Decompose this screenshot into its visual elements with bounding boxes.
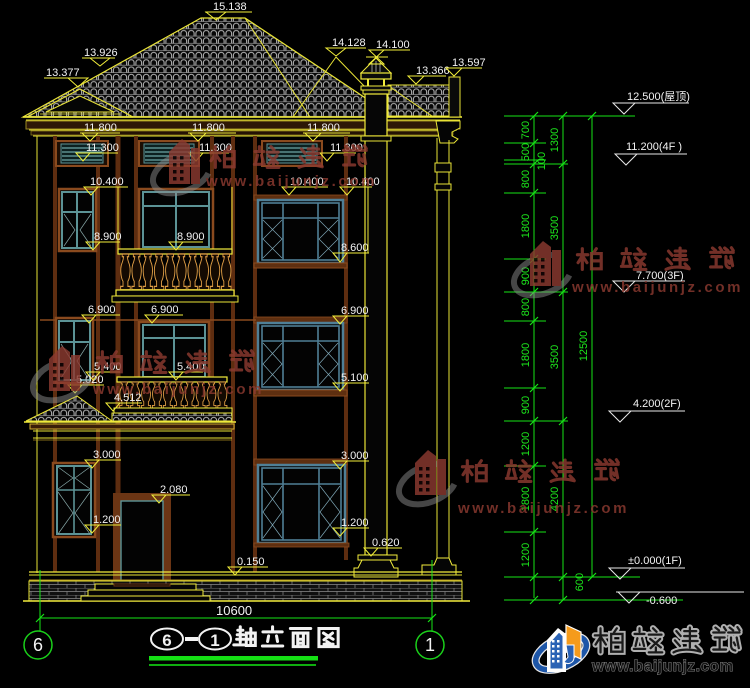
svg-text:10600: 10600 [216, 603, 252, 618]
svg-text:www.baijunjz.com: www.baijunjz.com [591, 658, 734, 675]
svg-text:1800: 1800 [520, 214, 532, 238]
svg-text:1800: 1800 [520, 343, 532, 367]
svg-text:1300: 1300 [549, 128, 561, 152]
svg-text:15.138: 15.138 [213, 1, 247, 13]
svg-text:11.800: 11.800 [84, 122, 117, 134]
svg-text:12.500(屋顶): 12.500(屋顶) [627, 90, 690, 103]
svg-text:6.900: 6.900 [341, 305, 369, 317]
svg-text:700: 700 [520, 121, 532, 139]
svg-text:12500: 12500 [578, 331, 590, 362]
svg-text:6.900: 6.900 [88, 304, 116, 316]
svg-text:1200: 1200 [520, 432, 532, 456]
svg-text:1: 1 [425, 635, 435, 655]
svg-text:800: 800 [520, 298, 532, 316]
svg-text:600: 600 [574, 573, 586, 591]
svg-text:500: 500 [520, 143, 532, 161]
svg-text:10.400: 10.400 [90, 176, 124, 188]
svg-text:5.100: 5.100 [341, 372, 369, 384]
svg-text:0.620: 0.620 [372, 537, 400, 549]
svg-text:4.200(2F): 4.200(2F) [633, 398, 681, 410]
svg-text:3.000: 3.000 [93, 449, 121, 461]
svg-text:8.900: 8.900 [94, 231, 122, 243]
svg-text:6: 6 [162, 631, 171, 650]
svg-text:www.baijunjz.com: www.baijunjz.com [571, 279, 743, 296]
svg-text:11.800: 11.800 [307, 122, 340, 134]
svg-text:www.baijunjz.com: www.baijunjz.com [457, 500, 629, 517]
svg-text:1: 1 [210, 631, 219, 650]
svg-text:11.800: 11.800 [192, 122, 225, 134]
svg-text:0.150: 0.150 [237, 556, 265, 568]
svg-text:13.926: 13.926 [84, 47, 118, 59]
svg-text:14.128: 14.128 [332, 37, 366, 49]
svg-text:11.300: 11.300 [86, 142, 119, 154]
svg-text:1.200: 1.200 [341, 517, 369, 529]
svg-text:8.600: 8.600 [341, 242, 369, 254]
svg-text:8.900: 8.900 [177, 231, 205, 243]
svg-text:6.900: 6.900 [151, 304, 179, 316]
svg-text:800: 800 [520, 170, 532, 188]
svg-text:2.080: 2.080 [160, 484, 188, 496]
svg-text:www.baijunjz.com: www.baijunjz.com [92, 381, 264, 398]
svg-text:13.377: 13.377 [46, 67, 80, 79]
svg-text:100: 100 [536, 152, 548, 170]
svg-text:3500: 3500 [549, 345, 561, 369]
svg-text:11.200(4F ): 11.200(4F ) [626, 141, 682, 153]
svg-text:www.baijunjz.com: www.baijunjz.com [205, 173, 377, 190]
svg-text:3.000: 3.000 [341, 450, 369, 462]
svg-text:13.597: 13.597 [452, 57, 486, 69]
svg-text:1200: 1200 [520, 543, 532, 567]
svg-text:900: 900 [520, 396, 532, 414]
svg-text:6: 6 [33, 635, 43, 655]
svg-text:-0.600: -0.600 [646, 595, 677, 607]
svg-text:1.200: 1.200 [93, 514, 121, 526]
svg-text:14.100: 14.100 [376, 39, 410, 51]
svg-text:13.366: 13.366 [416, 65, 450, 77]
svg-text:3500: 3500 [549, 216, 561, 240]
svg-text:±0.000(1F): ±0.000(1F) [628, 555, 682, 567]
